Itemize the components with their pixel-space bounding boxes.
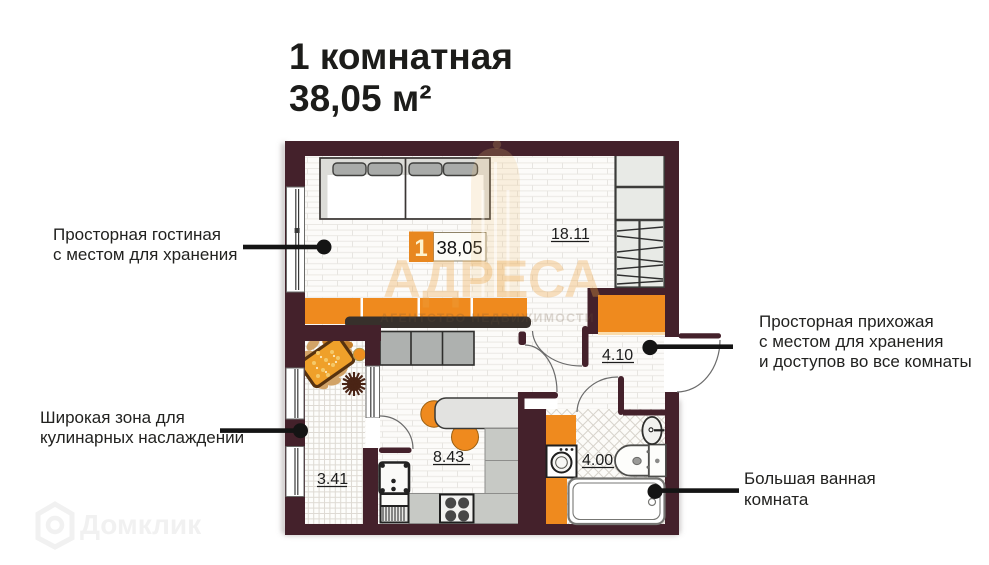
svg-text:АГЕНТСТВО НЕДВИЖИМОСТИ: АГЕНТСТВО НЕДВИЖИМОСТИ: [380, 311, 595, 325]
svg-text:4.00: 4.00: [582, 452, 613, 469]
svg-text:АДРЕСА: АДРЕСА: [383, 250, 601, 309]
svg-text:Домклик: Домклик: [80, 509, 202, 540]
svg-text:18.11: 18.11: [551, 226, 590, 243]
svg-text:3.41: 3.41: [317, 471, 348, 488]
svg-text:8.43: 8.43: [433, 449, 464, 466]
svg-text:4.10: 4.10: [602, 347, 633, 364]
